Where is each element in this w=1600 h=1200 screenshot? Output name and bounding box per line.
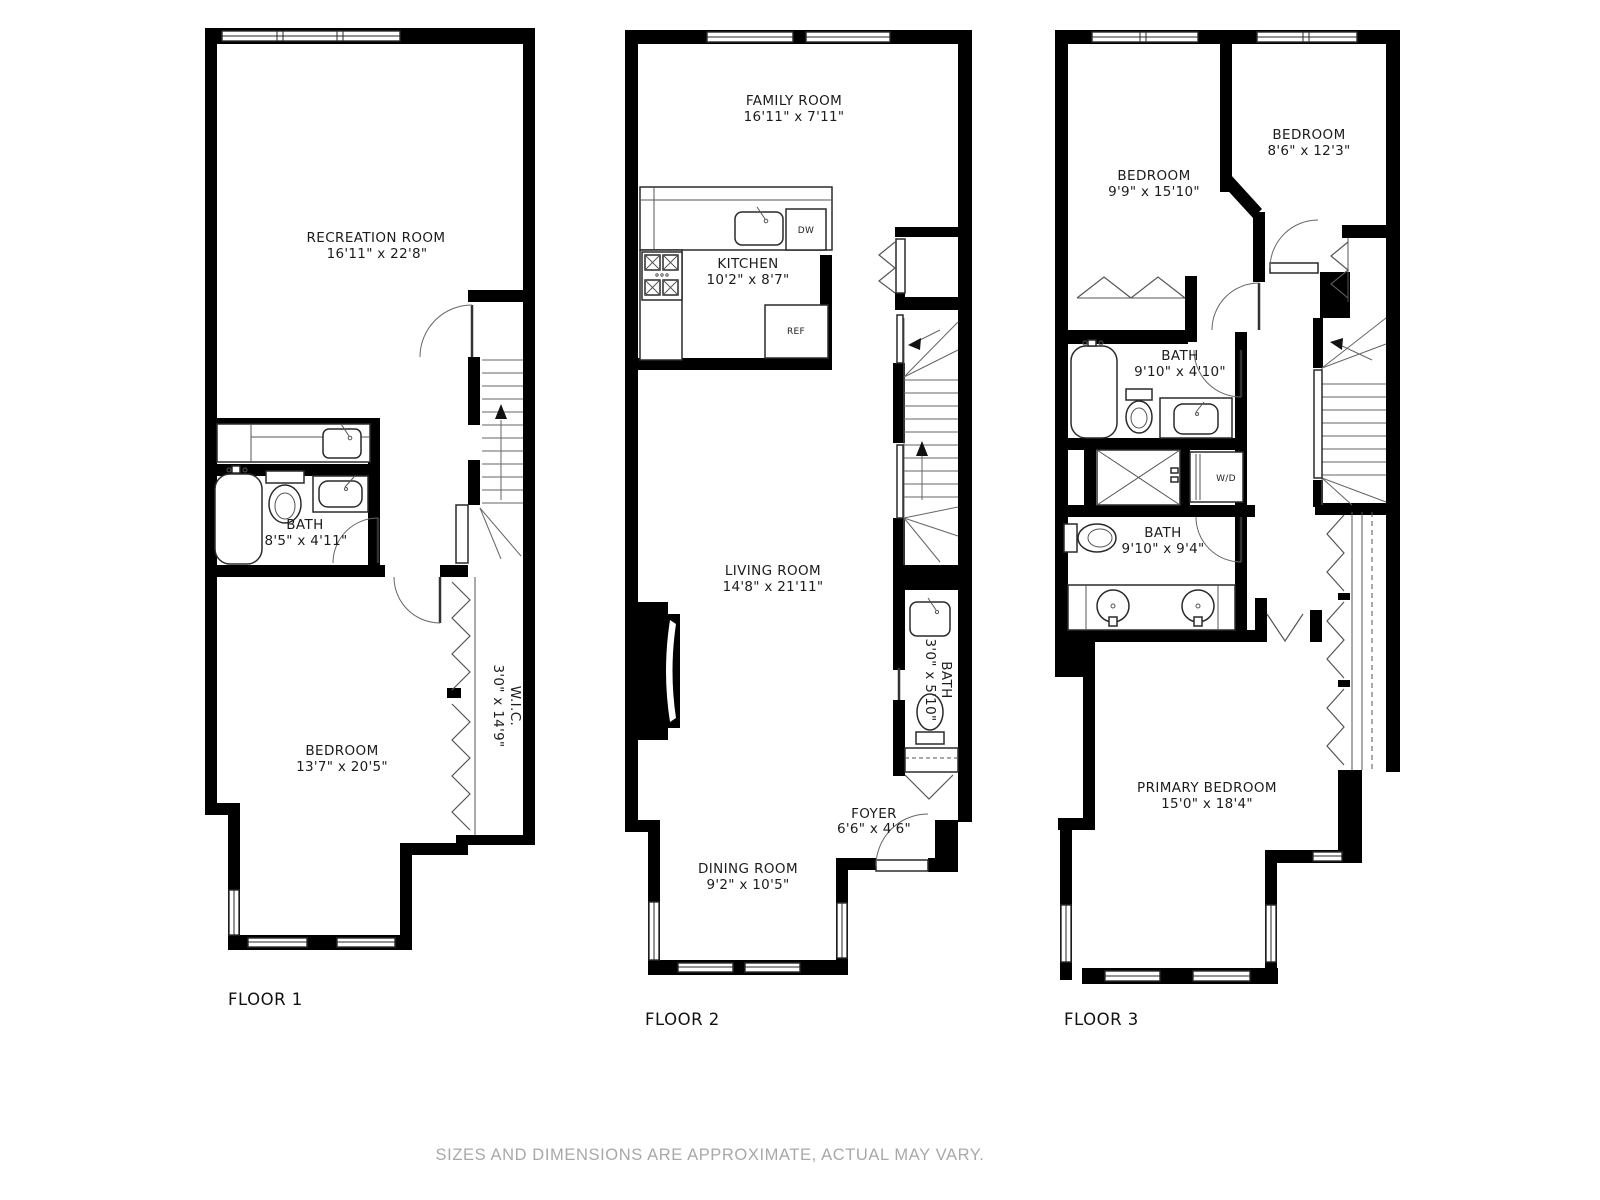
closet-bifold-door — [1077, 277, 1185, 298]
floor-3-walls — [1055, 30, 1400, 984]
floor-3-plan: W/D — [1045, 20, 1410, 995]
primary-bedroom-door — [1267, 614, 1303, 641]
sink-icon — [1160, 398, 1232, 438]
room-dims-living: 14'8" x 21'11" — [723, 579, 824, 595]
room-dims-dining: 9'2" x 10'5" — [707, 877, 790, 893]
room-label-bath-4: BATH — [1144, 525, 1181, 541]
floor-2-plan: DW REF — [615, 20, 975, 980]
room-label-recreation: RECREATION ROOM — [307, 230, 446, 246]
closet-bifold-door — [879, 239, 905, 293]
refrigerator: REF — [765, 305, 828, 358]
room-label-primary: PRIMARY BEDROOM — [1137, 780, 1277, 796]
floor-3-caption: FLOOR 3 — [1064, 1010, 1139, 1029]
staircase — [456, 360, 523, 563]
floor-plan-page: RECREATION ROOM 16'11" x 22'8" BATH 8'5"… — [0, 0, 1600, 1200]
sink-icon — [323, 424, 361, 458]
room-dims-bath-4: 9'10" x 9'4" — [1122, 541, 1205, 557]
room-dims-bedroom-1: 13'7" x 20'5" — [296, 759, 388, 775]
double-vanity — [1068, 585, 1235, 630]
washer-dryer: W/D — [1190, 452, 1243, 502]
stair-up-arrow — [916, 441, 928, 456]
room-label-family: FAMILY ROOM — [746, 93, 842, 109]
room-label-bedroom-3: BEDROOM — [1272, 127, 1345, 143]
room-label-bedroom-1: BEDROOM — [305, 743, 378, 759]
floor-1-plan: RECREATION ROOM 16'11" x 22'8" BATH 8'5"… — [195, 20, 545, 970]
toilet-icon — [1064, 524, 1116, 552]
stove-icon — [642, 252, 682, 300]
sink-icon — [910, 598, 950, 636]
room-label-bath-2: BATH — [938, 661, 954, 698]
room-label-dining: DINING ROOM — [698, 861, 798, 877]
room-label-bath-3: BATH — [1161, 348, 1198, 364]
staircase — [897, 315, 958, 565]
room-label-bath-1: BATH — [286, 517, 323, 533]
room-dims-bath-2: 3'0" x 5'10" — [922, 639, 938, 722]
room-label-bedroom-2: BEDROOM — [1117, 168, 1190, 184]
shower-icon — [1097, 450, 1180, 505]
room-dims-kitchen: 10'2" x 8'7" — [707, 272, 790, 288]
staircase — [1314, 318, 1386, 505]
bathtub-icon — [1071, 340, 1117, 438]
room-dims-bath-1: 8'5" x 4'11" — [265, 533, 348, 549]
stair-down-arrow — [908, 338, 921, 350]
stair-down-arrow — [1330, 338, 1343, 350]
foyer-closet — [905, 748, 958, 799]
fireplace-icon — [638, 602, 680, 740]
counter — [217, 424, 370, 462]
closet-rod-zigzag — [1327, 512, 1372, 770]
refrigerator-label: REF — [787, 327, 805, 337]
floor-2-caption: FLOOR 2 — [645, 1010, 720, 1029]
toilet-icon — [1126, 389, 1152, 433]
kitchen-sink-icon — [735, 207, 783, 245]
floor-1-caption: FLOOR 1 — [228, 990, 303, 1009]
floor-2-walls — [625, 30, 972, 975]
disclaimer-text: SIZES AND DIMENSIONS ARE APPROXIMATE, AC… — [410, 1146, 1010, 1165]
room-label-foyer: FOYER — [851, 806, 897, 822]
dishwasher: DW — [786, 209, 826, 250]
bathtub-icon — [215, 466, 262, 564]
room-label-wic: W.I.C. — [507, 686, 523, 726]
room-dims-family: 16'11" x 7'11" — [744, 109, 845, 125]
toilet-icon — [266, 471, 304, 523]
room-label-living: LIVING ROOM — [725, 563, 821, 579]
sink-icon — [313, 476, 368, 512]
room-label-kitchen: KITCHEN — [717, 256, 778, 272]
room-dims-bath-3: 9'10" x 4'10" — [1134, 364, 1226, 380]
room-dims-foyer: 6'6" x 4'6" — [837, 821, 911, 837]
room-dims-primary: 15'0" x 18'4" — [1161, 796, 1253, 812]
room-dims-recreation: 16'11" x 22'8" — [327, 246, 428, 262]
washer-dryer-label: W/D — [1216, 474, 1236, 484]
room-dims-wic: 3'0" x 14'9" — [490, 665, 506, 748]
room-dims-bedroom-3: 8'6" x 12'3" — [1268, 143, 1351, 159]
angled-wall — [1220, 175, 1262, 218]
room-dims-bedroom-2: 9'9" x 15'10" — [1108, 184, 1200, 200]
closet-rod-zigzag — [452, 577, 475, 835]
dishwasher-label: DW — [798, 226, 814, 236]
